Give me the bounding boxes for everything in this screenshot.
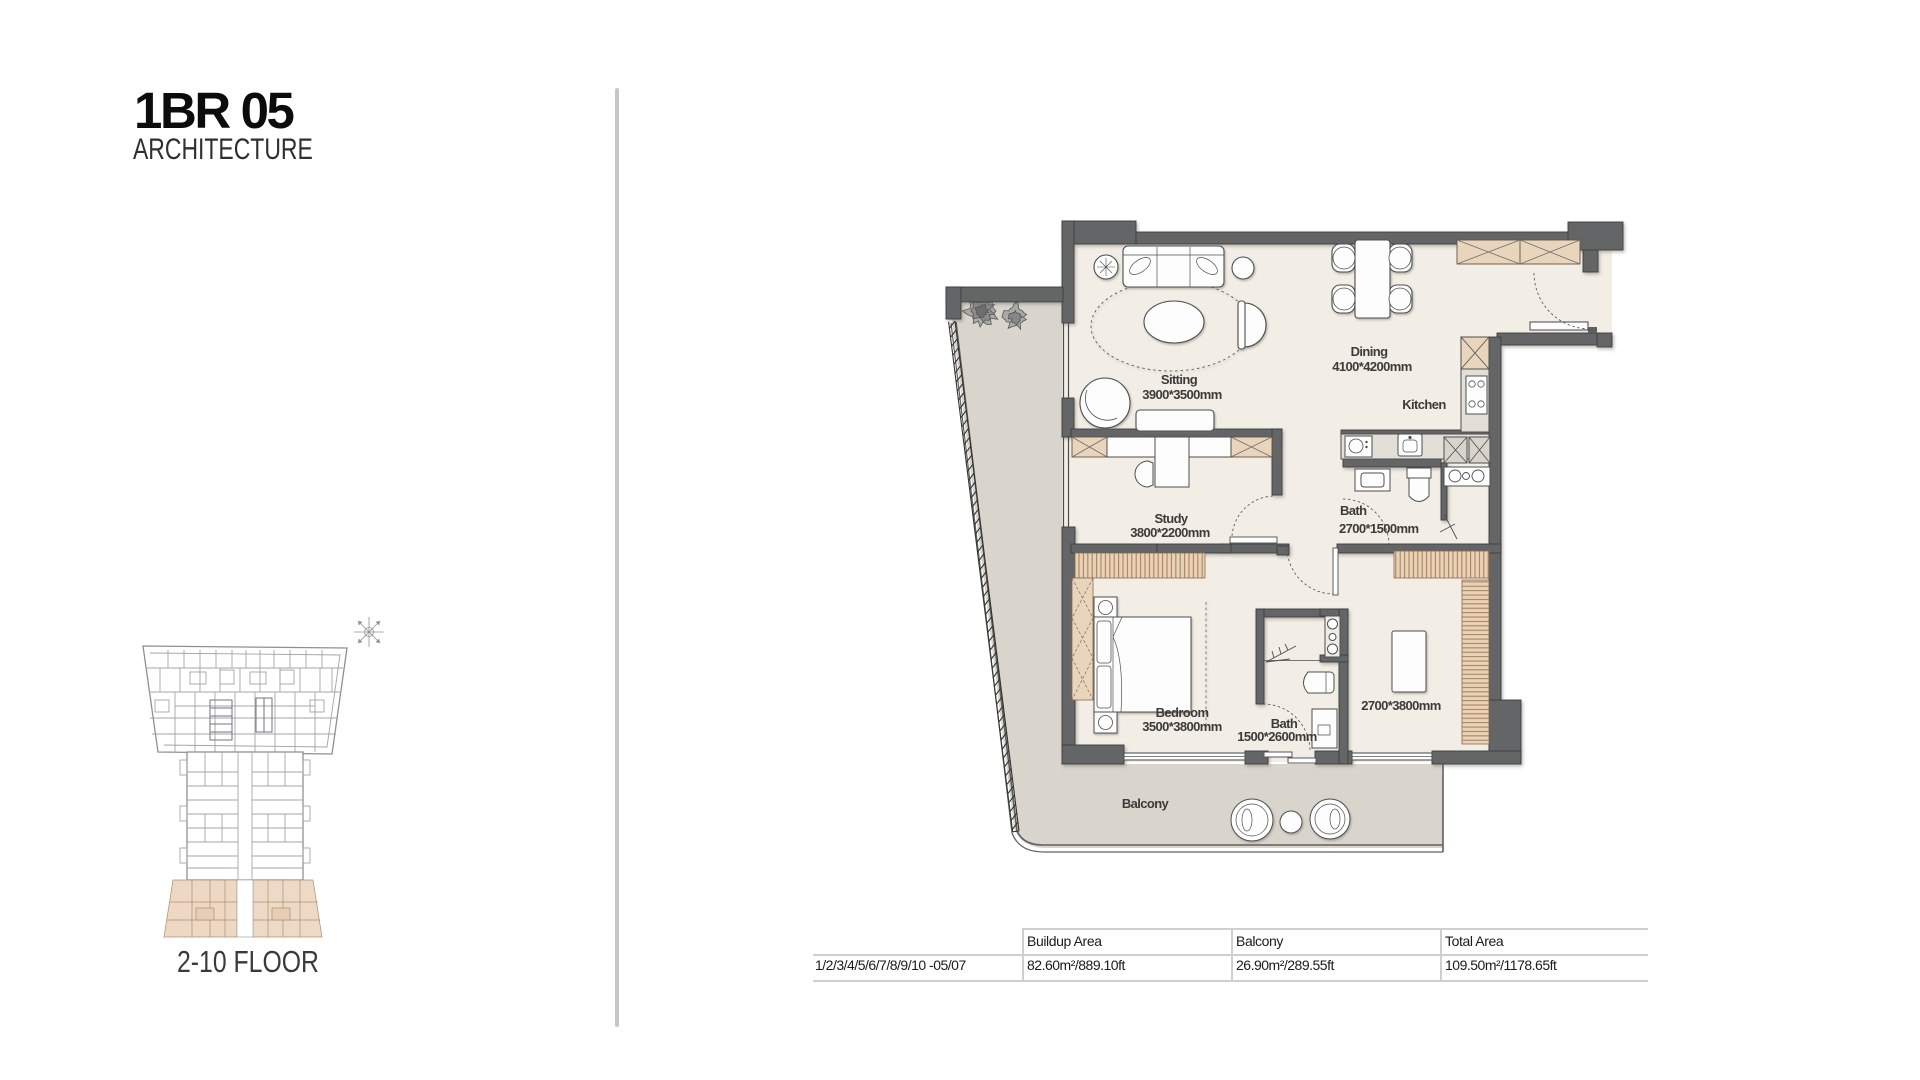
- svg-text:Dining: Dining: [1351, 344, 1388, 359]
- svg-text:Sitting: Sitting: [1161, 372, 1198, 387]
- svg-text:1500*2600mm: 1500*2600mm: [1237, 729, 1316, 744]
- svg-text:Bedroom: Bedroom: [1156, 705, 1209, 720]
- svg-text:Study: Study: [1154, 511, 1188, 526]
- svg-text:Kitchen: Kitchen: [1402, 397, 1446, 412]
- svg-text:3900*3500mm: 3900*3500mm: [1142, 387, 1221, 402]
- svg-text:2700*3800mm: 2700*3800mm: [1361, 698, 1440, 713]
- svg-text:Bath: Bath: [1340, 503, 1367, 518]
- svg-text:Balcony: Balcony: [1122, 796, 1170, 811]
- svg-text:3500*3800mm: 3500*3800mm: [1142, 719, 1221, 734]
- svg-text:3800*2200mm: 3800*2200mm: [1130, 525, 1209, 540]
- svg-text:2700*1500mm: 2700*1500mm: [1339, 521, 1418, 536]
- svg-text:4100*4200mm: 4100*4200mm: [1332, 359, 1411, 374]
